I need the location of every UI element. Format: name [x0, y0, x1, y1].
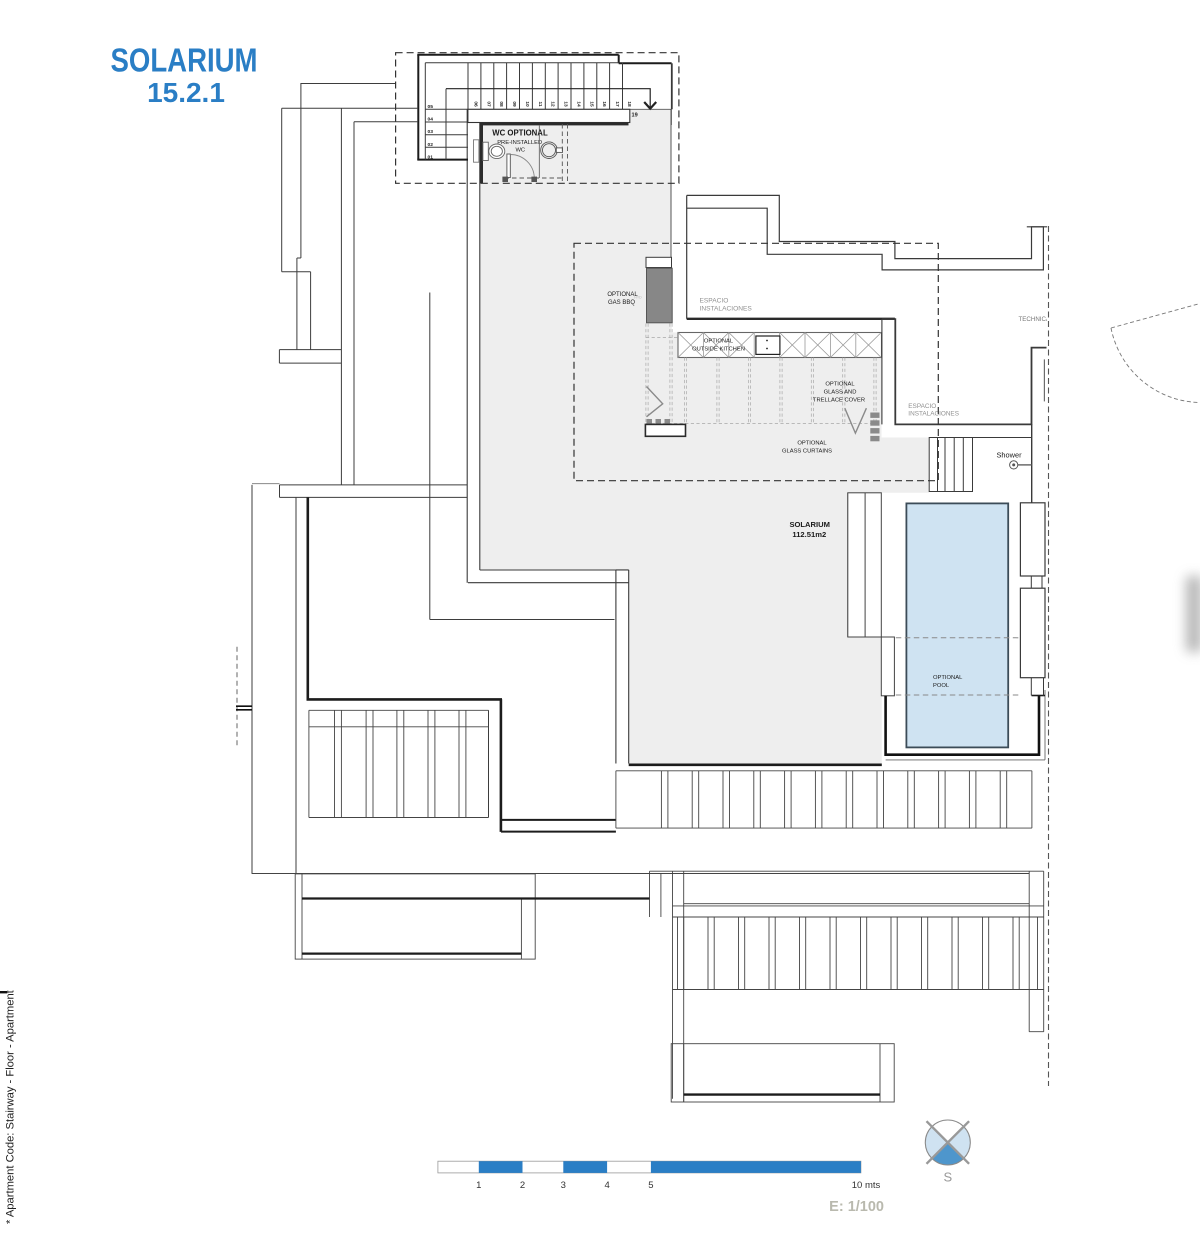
svg-text:S: S [943, 1170, 952, 1185]
svg-text:GAS BBQ: GAS BBQ [608, 300, 635, 306]
svg-text:GLASS AND: GLASS AND [824, 390, 857, 396]
svg-text:HYD: HYD [634, 296, 642, 300]
svg-text:INSTALACIONES: INSTALACIONES [908, 411, 959, 418]
svg-text:04: 04 [428, 117, 434, 123]
svg-text:14: 14 [576, 101, 582, 107]
svg-text:2: 2 [520, 1180, 525, 1191]
svg-text:WC: WC [515, 148, 525, 154]
svg-text:12: 12 [550, 101, 556, 107]
svg-text:01: 01 [428, 154, 434, 160]
svg-text:08: 08 [498, 101, 504, 107]
svg-text:15: 15 [588, 101, 594, 107]
svg-text:06: 06 [473, 101, 479, 107]
svg-text:11: 11 [537, 101, 543, 106]
svg-text:10: 10 [524, 101, 530, 107]
svg-text:4: 4 [604, 1180, 609, 1191]
svg-text:Shower: Shower [996, 451, 1022, 460]
svg-text:INSTALACIONES: INSTALACIONES [700, 306, 753, 313]
svg-text:10 mts: 10 mts [852, 1180, 881, 1191]
svg-text:OPTIONAL: OPTIONAL [825, 382, 855, 388]
svg-text:02: 02 [428, 142, 434, 148]
svg-text:09: 09 [511, 101, 517, 107]
svg-text:POOL: POOL [933, 683, 950, 689]
svg-text:03: 03 [428, 129, 434, 135]
svg-text:TRELLACE COVER: TRELLACE COVER [813, 398, 865, 404]
svg-text:GLASS CURTAINS: GLASS CURTAINS [782, 449, 832, 455]
svg-text:19: 19 [632, 112, 638, 118]
svg-text:OPTIONAL: OPTIONAL [704, 339, 734, 345]
svg-text:ESPACIO: ESPACIO [908, 403, 936, 410]
svg-text:OPTIONAL: OPTIONAL [797, 441, 827, 447]
svg-text:OPTIONAL: OPTIONAL [933, 675, 963, 681]
svg-text:17: 17 [614, 101, 620, 107]
svg-text:112.51m2: 112.51m2 [792, 530, 826, 539]
svg-text:15.2.1: 15.2.1 [147, 77, 225, 108]
svg-text:OUTSIDE KITCHEN: OUTSIDE KITCHEN [692, 347, 745, 353]
svg-text:16: 16 [601, 101, 607, 107]
svg-text:ESPACIO: ESPACIO [700, 298, 729, 305]
svg-text:5: 5 [648, 1180, 653, 1191]
svg-text:PRE-INSTALLED: PRE-INSTALLED [497, 140, 542, 146]
svg-text:1: 1 [476, 1180, 481, 1191]
svg-text:05: 05 [428, 104, 434, 110]
svg-text:3: 3 [561, 1180, 566, 1191]
svg-text:07: 07 [485, 101, 491, 107]
svg-text:E: 1/100: E: 1/100 [829, 1199, 884, 1215]
svg-text:SOLARIUM: SOLARIUM [111, 42, 258, 79]
svg-text:SOLARIUM: SOLARIUM [789, 520, 830, 529]
svg-text:13: 13 [563, 101, 569, 107]
svg-text:* Apartment Code: Stairway - F: * Apartment Code: Stairway - Floor - Apa… [5, 989, 17, 1224]
svg-text:18: 18 [626, 101, 632, 107]
